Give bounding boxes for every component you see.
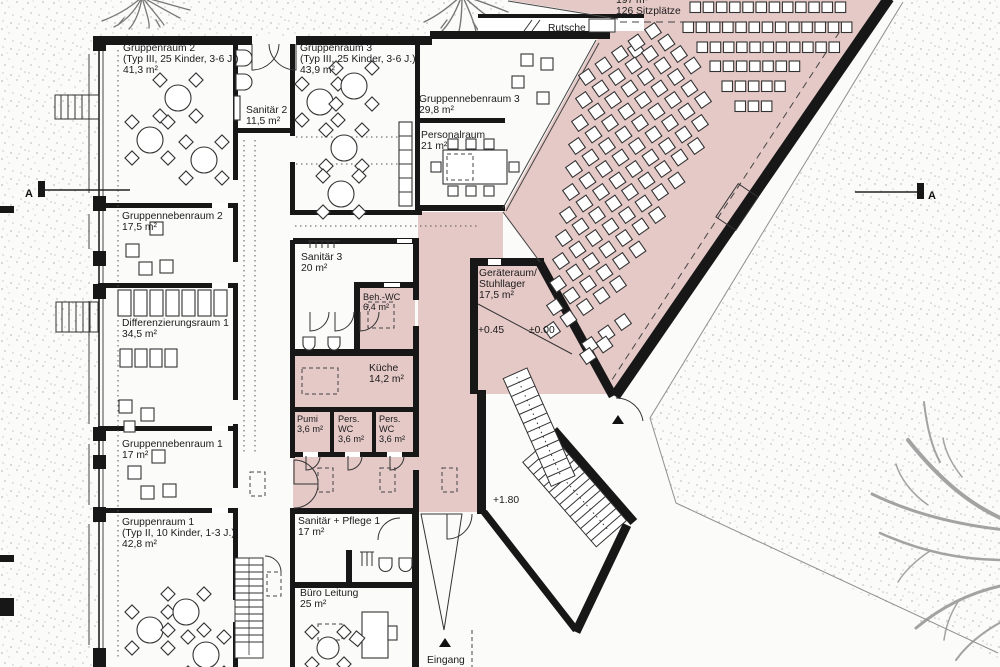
room-label-sanitaer-pflege-1: Sanitär + Pflege 117 m² — [298, 516, 380, 538]
room-label-sanitaer-2: Sanitär 211,5 m² — [246, 105, 287, 127]
annotation-level-zero: ±0.00 — [529, 325, 555, 336]
room-label-gruppennebenraum-3: Gruppennebenraum 329,8 m² — [419, 94, 520, 116]
room-label-gruppenraum-2: Gruppenraum 2(Typ III, 25 Kinder, 3-6 J.… — [123, 43, 239, 76]
room-label-sanitaer-3: Sanitär 320 m² — [301, 252, 342, 274]
annotation-eingang: Eingang — [427, 655, 465, 666]
room-label-gruppenraum-1: Gruppenraum 1(Typ II, 10 Kinder, 1-3 J.)… — [122, 517, 235, 550]
floor-plan-drawing: A A Gruppenraum 2(Typ III, 25 Kinder, 3-… — [0, 0, 1000, 667]
annotation-level-plus-180: +1.80 — [493, 495, 519, 506]
room-label-buero-leitung: Büro Leitung25 m² — [300, 588, 359, 610]
section-marker-a-left: A — [25, 188, 33, 200]
room-label-gruppennebenraum-1: Gruppennebenraum 117 m² — [122, 439, 223, 461]
central-staircase — [235, 558, 281, 658]
section-marker-a-right: A — [928, 190, 936, 202]
annotation-rutsche: Rutsche — [548, 23, 586, 34]
annotation-level-plus-045: +0.45 — [478, 325, 504, 336]
room-label-differenzierungsraum-1: Differenzierungsraum 134,5 m² — [122, 318, 229, 340]
room-label-gruppenraum-3: Gruppenraum 3(Typ III, 25 Kinder, 3-6 J.… — [300, 43, 416, 76]
floor-plan-page: A A Gruppenraum 2(Typ III, 25 Kinder, 3-… — [0, 0, 1000, 667]
room-label-gruppennebenraum-2: Gruppennebenraum 217,5 m² — [122, 211, 223, 233]
